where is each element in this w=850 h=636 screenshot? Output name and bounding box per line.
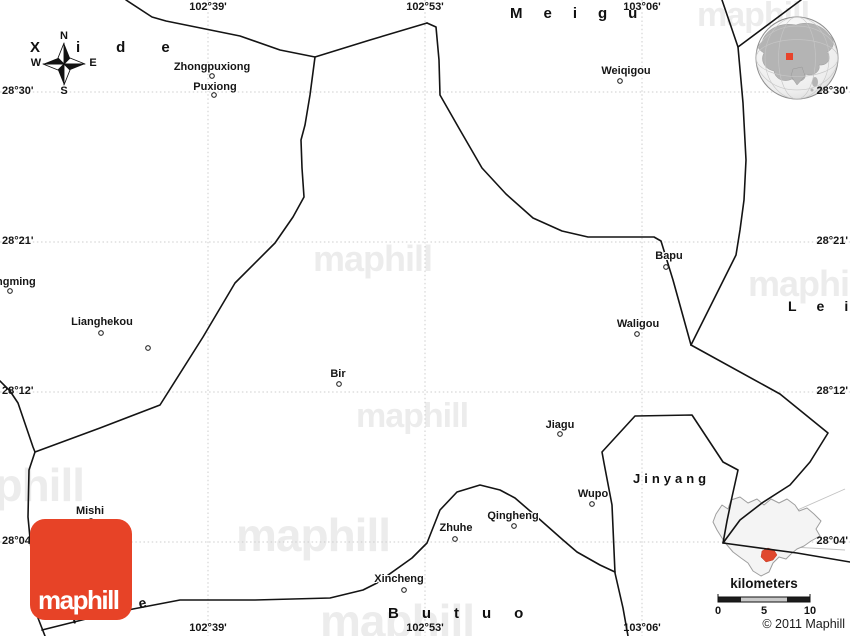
place-label: Zhongpuxiong bbox=[174, 61, 250, 73]
coordinate-label-bottom: 102°39' bbox=[189, 622, 227, 634]
place-label: Bir bbox=[330, 368, 345, 380]
region-label: Jinyang bbox=[633, 472, 710, 486]
region-label: Lei bbox=[788, 299, 850, 314]
place-label: Puxiong bbox=[193, 81, 236, 93]
place-label: Bapu bbox=[655, 250, 683, 262]
place-label: Jiagu bbox=[546, 419, 575, 431]
coordinate-label-left: 28°04' bbox=[2, 535, 34, 547]
coordinate-label-top: 102°53' bbox=[406, 1, 444, 13]
place-label: Waligou bbox=[617, 318, 659, 330]
region-label: Xide bbox=[30, 40, 206, 57]
compass-west-label: W bbox=[31, 58, 41, 69]
coordinate-label-right: 28°12' bbox=[817, 385, 849, 397]
place-label: Lianghekou bbox=[71, 316, 133, 328]
coordinate-label-right: 28°30' bbox=[817, 85, 849, 97]
coordinate-label-bottom: 102°53' bbox=[406, 622, 444, 634]
copyright-text: © 2011 Maphill bbox=[762, 617, 845, 631]
place-label: Mishi bbox=[76, 505, 104, 517]
blank-simple-map: maphillmaphillmaphillmaphillmaphillmaphi… bbox=[0, 0, 850, 636]
place-label: Wupo bbox=[578, 488, 608, 500]
place-label: Weiqigou bbox=[601, 65, 650, 77]
coordinate-label-left: 28°21' bbox=[2, 235, 34, 247]
scale-bar-title: kilometers bbox=[730, 577, 798, 592]
coordinate-label-right: 28°04' bbox=[817, 535, 849, 547]
coordinate-label-right: 28°21' bbox=[817, 235, 849, 247]
compass-south-label: S bbox=[60, 86, 67, 97]
place-label: Zhuhe bbox=[440, 522, 473, 534]
place-label: Xincheng bbox=[374, 573, 424, 585]
region-label: Meigu bbox=[510, 6, 658, 23]
region-label: Butuo bbox=[388, 606, 546, 623]
place-label: Qingheng bbox=[487, 510, 538, 522]
coordinate-label-left: 28°30' bbox=[2, 85, 34, 97]
compass-east-label: E bbox=[89, 58, 96, 69]
scale-bar-tick-label: 5 bbox=[761, 605, 767, 617]
maphill-logo[interactable]: maphill bbox=[30, 519, 132, 620]
coordinate-label-bottom: 103°06' bbox=[623, 622, 661, 634]
place-label: ngming bbox=[0, 276, 36, 288]
scale-bar-tick-label: 0 bbox=[715, 605, 721, 617]
maphill-logo-text: maphill bbox=[38, 587, 119, 613]
scale-bar-tick-label: 10 bbox=[804, 605, 816, 617]
coordinate-label-left: 28°12' bbox=[2, 385, 34, 397]
coordinate-label-top: 102°39' bbox=[189, 1, 227, 13]
